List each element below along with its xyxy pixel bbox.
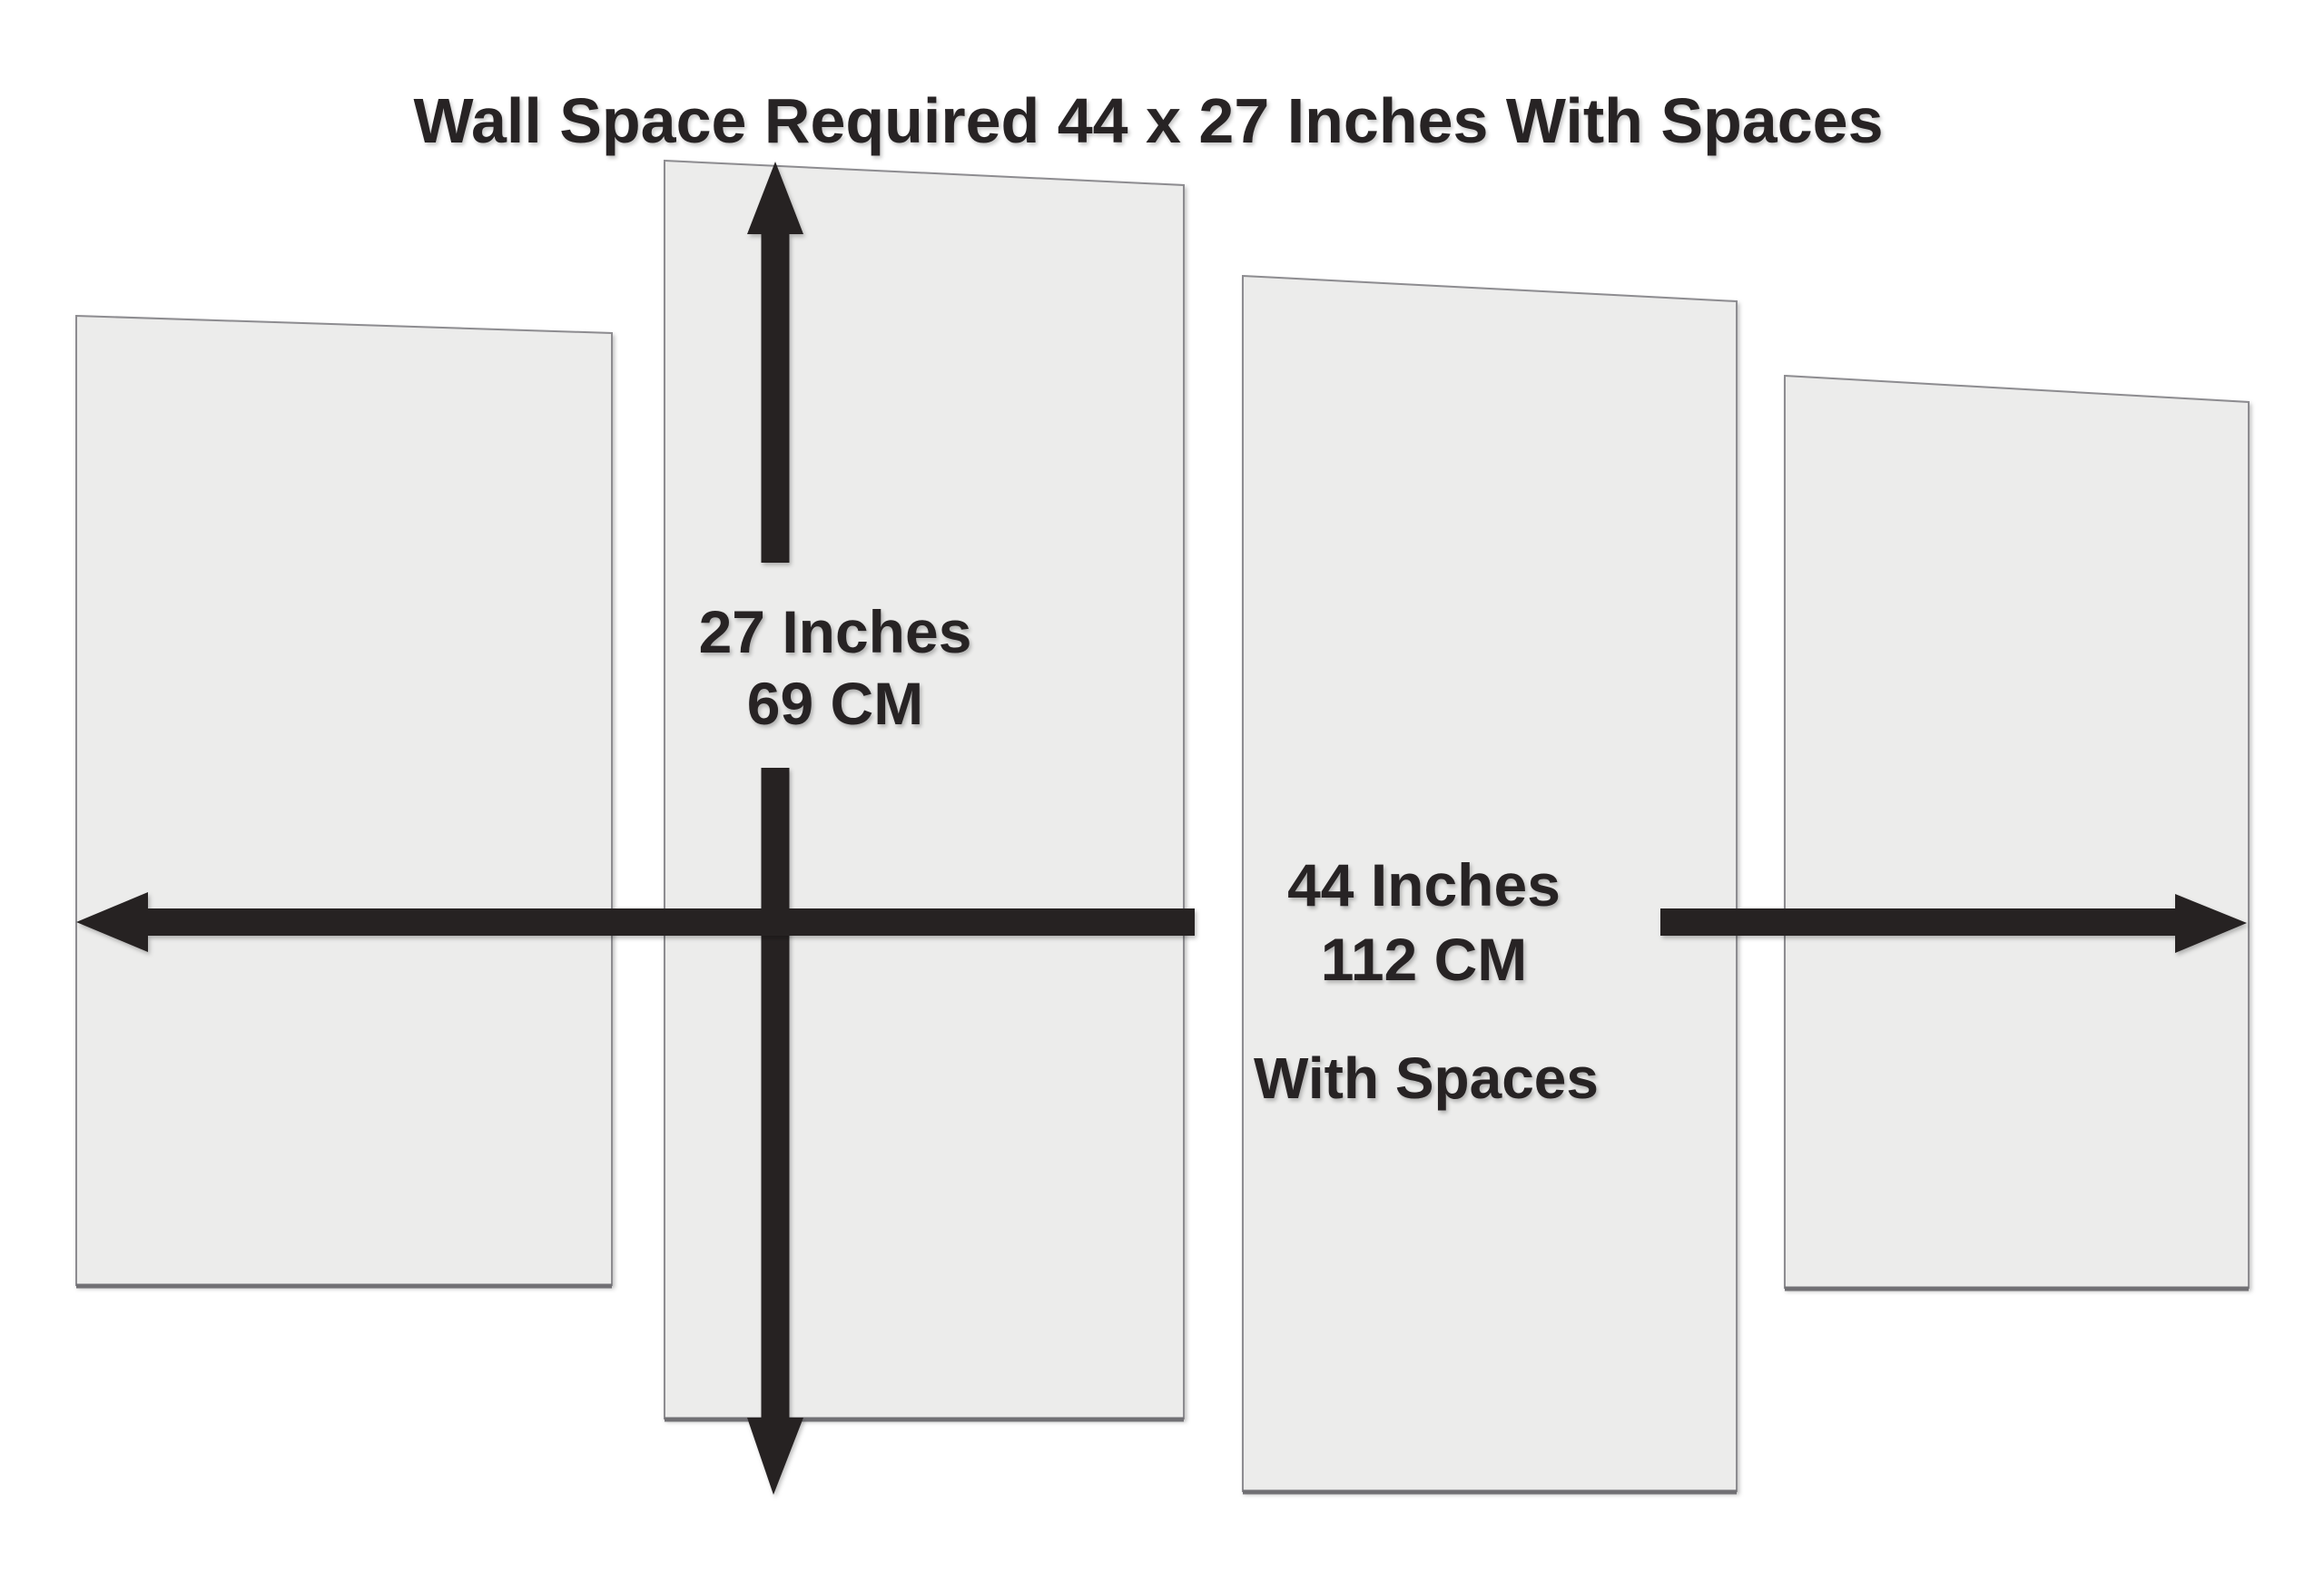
width-cm-text: 112 CM [1222, 922, 1626, 997]
horizontal-shaft-right [1660, 908, 2181, 936]
down-arrowhead-icon [747, 1418, 803, 1495]
diagram-title: Wall Space Required 44 x 27 Inches With … [0, 86, 2297, 155]
canvas-panel-2 [665, 161, 1184, 1419]
width-inches-text: 44 Inches [1222, 848, 1626, 922]
with-spaces-text: With Spaces [1222, 1041, 1630, 1115]
diagram-graphics [0, 0, 2324, 1571]
canvas-panel-1 [76, 316, 612, 1285]
canvas-panel-4 [1785, 376, 2249, 1288]
width-dimension-label: 44 Inches 112 CM [1222, 848, 1626, 997]
height-inches-text: 27 Inches [635, 596, 1035, 668]
height-dimension-label: 27 Inches 69 CM [635, 596, 1035, 740]
wall-space-diagram: Wall Space Required 44 x 27 Inches With … [0, 0, 2324, 1571]
with-spaces-note: With Spaces [1222, 1041, 1630, 1115]
horizontal-shaft-left [143, 908, 1195, 936]
vertical-shaft-lower [762, 768, 790, 1421]
height-cm-text: 69 CM [635, 668, 1035, 740]
vertical-shaft-upper [762, 229, 790, 563]
